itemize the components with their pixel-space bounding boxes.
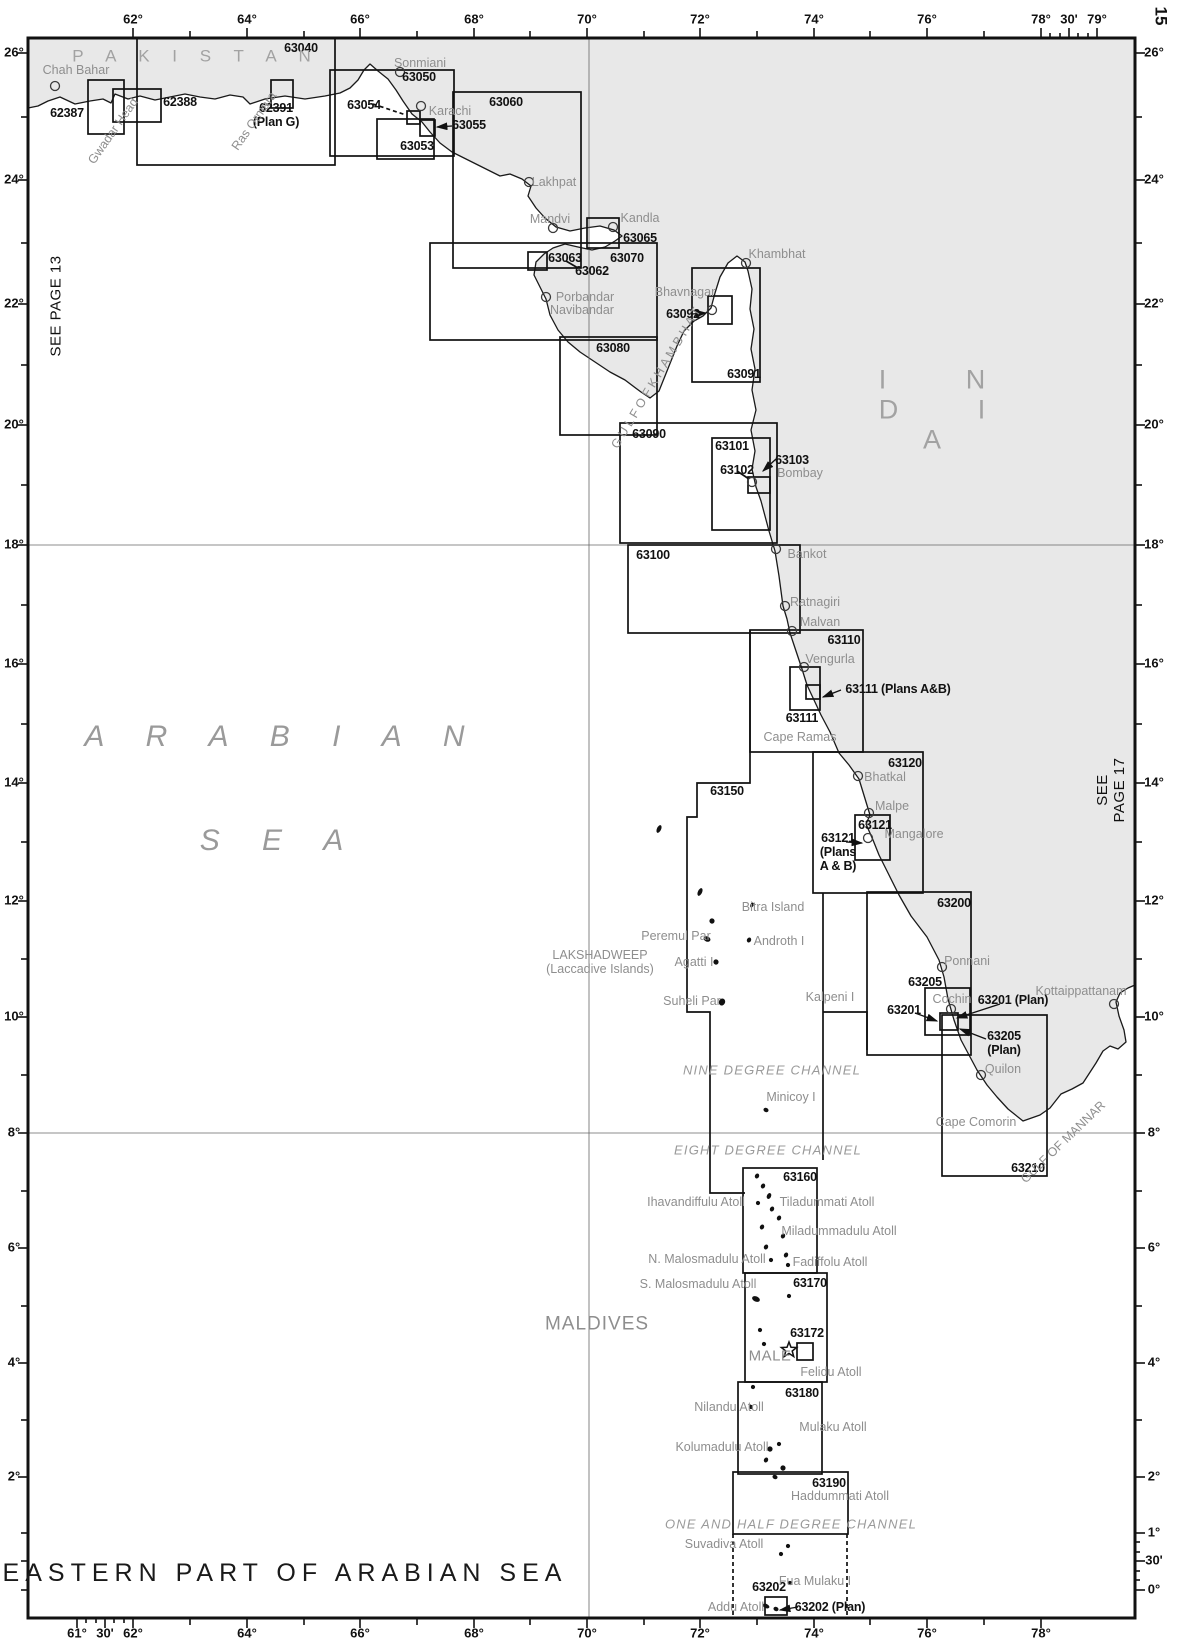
axis-label-top: 68° (464, 13, 484, 28)
place-label: Lakhpat (532, 175, 576, 189)
axis-label-left: 20° (4, 418, 24, 433)
axis-label-right: 8° (1148, 1126, 1160, 1141)
chart-number-label: 63172 (790, 1326, 824, 1340)
axis-label-bottom: 76° (917, 1627, 937, 1642)
axis-label-left: 16° (4, 657, 24, 672)
chart-number-label: 63103 (775, 453, 809, 467)
axis-label-top: 74° (804, 13, 824, 28)
axis-label-right: 12° (1144, 894, 1164, 909)
axis-label-right: 18° (1144, 538, 1164, 553)
axis-label-right: 0° (1148, 1583, 1160, 1598)
axis-label-left: 24° (4, 173, 24, 188)
country-label: MALDIVES (545, 1313, 649, 1334)
axis-label-left: 22° (4, 297, 24, 312)
rotated-label: Gwadar Head (85, 95, 141, 166)
chart-number-label: 63200 (937, 896, 971, 910)
place-label: Fadiffolu Atoll (793, 1255, 868, 1269)
place-label: Minicoy I (766, 1090, 815, 1104)
axis-label-left: 2° (8, 1470, 20, 1485)
axis-label-right: 30' (1145, 1554, 1163, 1569)
axis-label-top: 62° (123, 13, 143, 28)
chart-number-label: 63101 (715, 439, 749, 453)
place-label: Bankot (788, 547, 827, 561)
chart-number-label: 63120 (888, 756, 922, 770)
place-label: Cape Comorin (936, 1115, 1017, 1129)
chart-number-label: 63055 (452, 118, 486, 132)
chart-number-label: 63150 (710, 784, 744, 798)
axis-label-bottom: 30' (96, 1627, 114, 1642)
place-label: Agatti I (675, 955, 714, 969)
place-label: Kalpeni I (806, 990, 855, 1004)
place-label: Kandla (621, 211, 660, 225)
axis-label-top: 72° (690, 13, 710, 28)
chart-number-label: 63062 (575, 264, 609, 278)
rotated-label: 15 (1151, 7, 1170, 26)
channel-label: EIGHT DEGREE CHANNEL (674, 1144, 862, 1159)
chart-number-label: 63070 (610, 251, 644, 265)
place-label: Cape Ramas (764, 730, 837, 744)
chart-number-label: 63080 (596, 341, 630, 355)
axis-label-top: 30' (1060, 13, 1078, 28)
axis-label-top: 64° (237, 13, 257, 28)
axis-label-right: 2° (1148, 1470, 1160, 1485)
chart-number-label: 62387 (50, 106, 84, 120)
chart-number-label: 63065 (623, 231, 657, 245)
place-label: Ratnagiri (790, 595, 840, 609)
place-label: Sonmiani (394, 56, 446, 70)
axis-label-right: 1° (1148, 1526, 1160, 1541)
chart-number-label: 63170 (793, 1276, 827, 1290)
place-label: Malpe (875, 799, 909, 813)
chart-number-label: 63060 (489, 95, 523, 109)
sea-name-label: A R A B I A N (84, 720, 481, 754)
chart-number-label: 63053 (400, 139, 434, 153)
place-label: Malvan (800, 615, 840, 629)
axis-label-left: 6° (8, 1241, 20, 1256)
place-label: Khambhat (749, 247, 806, 261)
axis-label-bottom: 64° (237, 1627, 257, 1642)
place-label: Suheli Par (663, 994, 721, 1008)
channel-label: ONE AND HALF DEGREE CHANNEL (665, 1518, 917, 1533)
place-label: Felidu Atoll (800, 1365, 861, 1379)
chart-number-label: 63121 (Plans A & B) (820, 831, 857, 873)
axis-label-left: 8° (8, 1126, 20, 1141)
axis-label-right: 20° (1144, 418, 1164, 433)
place-label: Karachi (429, 104, 471, 118)
place-label: Fua Mulaku I (779, 1574, 851, 1588)
axis-label-top: 78° (1031, 13, 1051, 28)
chart-number-label: 63201 (887, 1003, 921, 1017)
place-label: Ihavandiffulu Atoll (647, 1195, 745, 1209)
chart-index-page: EASTERN PART OF ARABIAN SEA 623876238863… (0, 0, 1180, 1650)
page-title: EASTERN PART OF ARABIAN SEA (3, 1559, 568, 1587)
place-label: Vengurla (805, 652, 854, 666)
axis-label-right: 22° (1144, 297, 1164, 312)
place-label: Suvadiva Atoll (685, 1537, 764, 1551)
axis-label-right: 10° (1144, 1010, 1164, 1025)
place-label: Peremul Par (641, 929, 710, 943)
axis-label-bottom: 61° (67, 1627, 87, 1642)
rotated-label: SEE PAGE 17 (1095, 756, 1129, 824)
place-label: Kolumadulu Atoll (675, 1440, 768, 1454)
place-label: N. Malosmadulu Atoll (648, 1252, 765, 1266)
place-label: Addu Atoll (708, 1600, 764, 1614)
place-label: Cochin (933, 992, 972, 1006)
place-label: Nilandu Atoll (694, 1400, 764, 1414)
place-label: Navibandar (550, 303, 614, 317)
place-label: Bhatkal (864, 770, 906, 784)
axis-label-right: 4° (1148, 1356, 1160, 1371)
chart-number-label: 63205 (908, 975, 942, 989)
place-label: S. Malosmadulu Atoll (640, 1277, 757, 1291)
chart-number-label: 63160 (783, 1170, 817, 1184)
sea-name-label: S E A (200, 824, 361, 858)
place-label: Porbandar (556, 290, 614, 304)
axis-label-top: 70° (577, 13, 597, 28)
axis-label-bottom: 62° (123, 1627, 143, 1642)
country-label: I N D I A (835, 365, 1065, 456)
chart-number-label: 63063 (548, 251, 582, 265)
axis-label-bottom: 68° (464, 1627, 484, 1642)
chart-number-label: 63102 (720, 463, 754, 477)
rotated-label: GULF OF MANNAR (1018, 1098, 1108, 1186)
axis-label-left: 14° (4, 776, 24, 791)
axis-label-left: 10° (4, 1010, 24, 1025)
chart-number-label: 63111 (786, 711, 818, 725)
place-label: Kottaippattanam (1035, 984, 1126, 998)
place-label-large: MALE (749, 1349, 792, 1366)
place-label: Mangalore (884, 827, 943, 841)
rotated-label: SEE PAGE 13 (49, 255, 66, 356)
chart-number-label: 63100 (636, 548, 670, 562)
place-label: Mulaku Atoll (799, 1420, 866, 1434)
axis-label-bottom: 78° (1031, 1627, 1051, 1642)
axis-label-top: 79° (1087, 13, 1107, 28)
axis-label-left: 18° (4, 538, 24, 553)
axis-label-left: 12° (4, 894, 24, 909)
chart-number-label: 63180 (785, 1386, 819, 1400)
place-label: Miladummadulu Atoll (781, 1224, 896, 1238)
axis-label-bottom: 72° (690, 1627, 710, 1642)
axis-label-left: 26° (4, 46, 24, 61)
chart-number-label: 63090 (632, 427, 666, 441)
place-label: Bombay (777, 466, 823, 480)
chart-number-label: 63091 (727, 367, 761, 381)
channel-label: NINE DEGREE CHANNEL (683, 1064, 861, 1079)
axis-label-right: 6° (1148, 1241, 1160, 1256)
axis-label-right: 26° (1144, 46, 1164, 61)
axis-label-bottom: 66° (350, 1627, 370, 1642)
chart-number-label: 63111 (Plans A&B) (845, 682, 950, 696)
place-label: Androth I (754, 934, 805, 948)
place-label: LAKSHADWEEP (Laccadive Islands) (546, 948, 654, 976)
country-label: P A K I S T A N (72, 46, 319, 65)
chart-number-label: 63205 (Plan) (987, 1029, 1021, 1057)
axis-label-right: 14° (1144, 776, 1164, 791)
chart-number-label: 63050 (402, 70, 436, 84)
axis-label-left: 4° (8, 1356, 20, 1371)
place-label: Haddummati Atoll (791, 1489, 889, 1503)
chart-number-label: 63110 (827, 633, 860, 647)
axis-label-top: 76° (917, 13, 937, 28)
map-labels-layer: EASTERN PART OF ARABIAN SEA 623876238863… (0, 0, 1180, 1650)
place-label: Bhavnagar (655, 285, 715, 299)
chart-number-label: 63190 (812, 1476, 846, 1490)
place-label: Ponnani (944, 954, 990, 968)
place-label: Quilon (985, 1062, 1021, 1076)
chart-number-label: 63054 (347, 98, 381, 112)
place-label: Tiladummati Atoll (780, 1195, 875, 1209)
place-label: Mandvi (530, 212, 570, 226)
chart-number-label: 62388 (163, 95, 197, 109)
axis-label-right: 24° (1144, 173, 1164, 188)
axis-label-bottom: 74° (804, 1627, 824, 1642)
place-label: Bitra Island (742, 900, 805, 914)
axis-label-right: 16° (1144, 657, 1164, 672)
axis-label-bottom: 70° (577, 1627, 597, 1642)
chart-number-label: 63202 (Plan) (795, 1600, 866, 1614)
axis-label-top: 66° (350, 13, 370, 28)
